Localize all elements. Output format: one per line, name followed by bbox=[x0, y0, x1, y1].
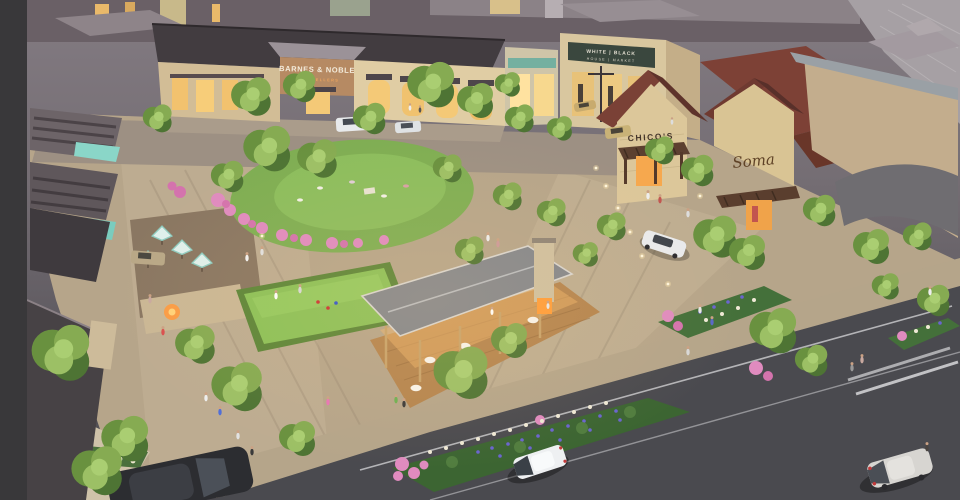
shopping-center-rendering: BARNES & NOBLE BOOKSELLERS bbox=[0, 0, 960, 500]
person bbox=[925, 442, 928, 451]
person bbox=[409, 103, 412, 110]
person bbox=[250, 446, 253, 455]
soma-lit-entry bbox=[746, 200, 772, 230]
left-letterbox-bar bbox=[0, 0, 27, 500]
person bbox=[860, 354, 863, 363]
window-display-figure bbox=[752, 206, 758, 222]
person bbox=[671, 117, 674, 124]
person bbox=[419, 105, 422, 112]
person bbox=[850, 362, 853, 371]
bollard-light bbox=[697, 193, 703, 199]
rendering-canvas: BARNES & NOBLE BOOKSELLERS bbox=[0, 0, 960, 500]
warm-light-overlay bbox=[110, 130, 750, 470]
person bbox=[928, 286, 931, 295]
